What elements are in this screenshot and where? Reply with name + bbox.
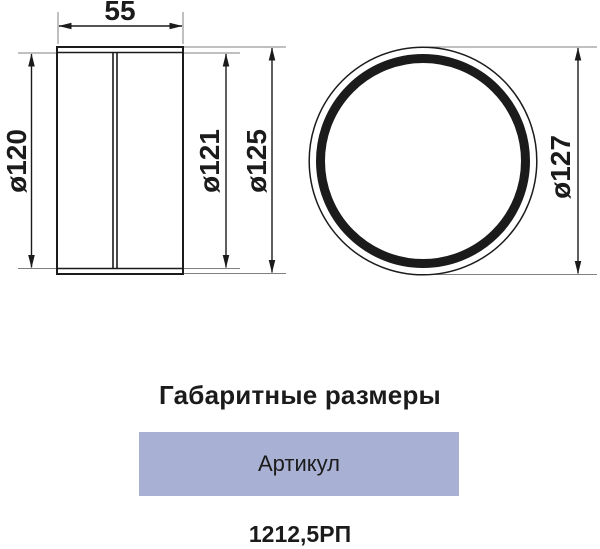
dimension-label-d127: ø127 [545, 135, 576, 199]
dimension-label-length: 55 [104, 0, 135, 26]
side-view: 55 ø120 ø121 ø125 [1, 0, 286, 274]
dimension-label-d120: ø120 [1, 129, 32, 193]
front-view: ø127 [309, 47, 597, 275]
technical-drawing-page: 55 ø120 ø121 ø125 ø127 Габаритные размер… [0, 0, 600, 549]
dimension-label-d121: ø121 [194, 129, 225, 193]
article-number: 1212,5РП [0, 521, 600, 547]
duct-ring-outline [309, 47, 537, 275]
section-title: Габаритные размеры [0, 380, 600, 410]
article-header-cell: Артикул [139, 432, 459, 496]
article-header-label: Артикул [258, 451, 340, 477]
duct-body-outline [57, 47, 183, 274]
dimension-drawing: 55 ø120 ø121 ø125 ø127 [0, 0, 600, 366]
dimension-label-d125: ø125 [241, 129, 272, 193]
